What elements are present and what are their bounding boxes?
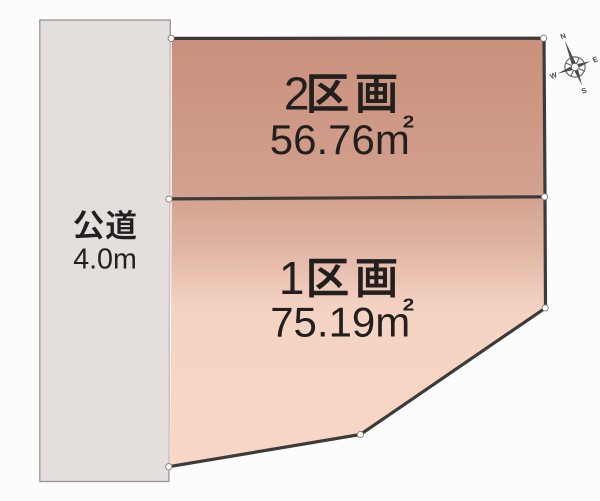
svg-text:2: 2 [403,111,415,131]
svg-text:75.19m: 75.19m [270,298,410,345]
svg-text:1: 1 [279,252,305,304]
svg-text:4.0m: 4.0m [73,244,137,276]
svg-text:2: 2 [284,67,310,119]
svg-text:2: 2 [403,294,415,314]
svg-text:56.76m: 56.76m [270,116,410,163]
